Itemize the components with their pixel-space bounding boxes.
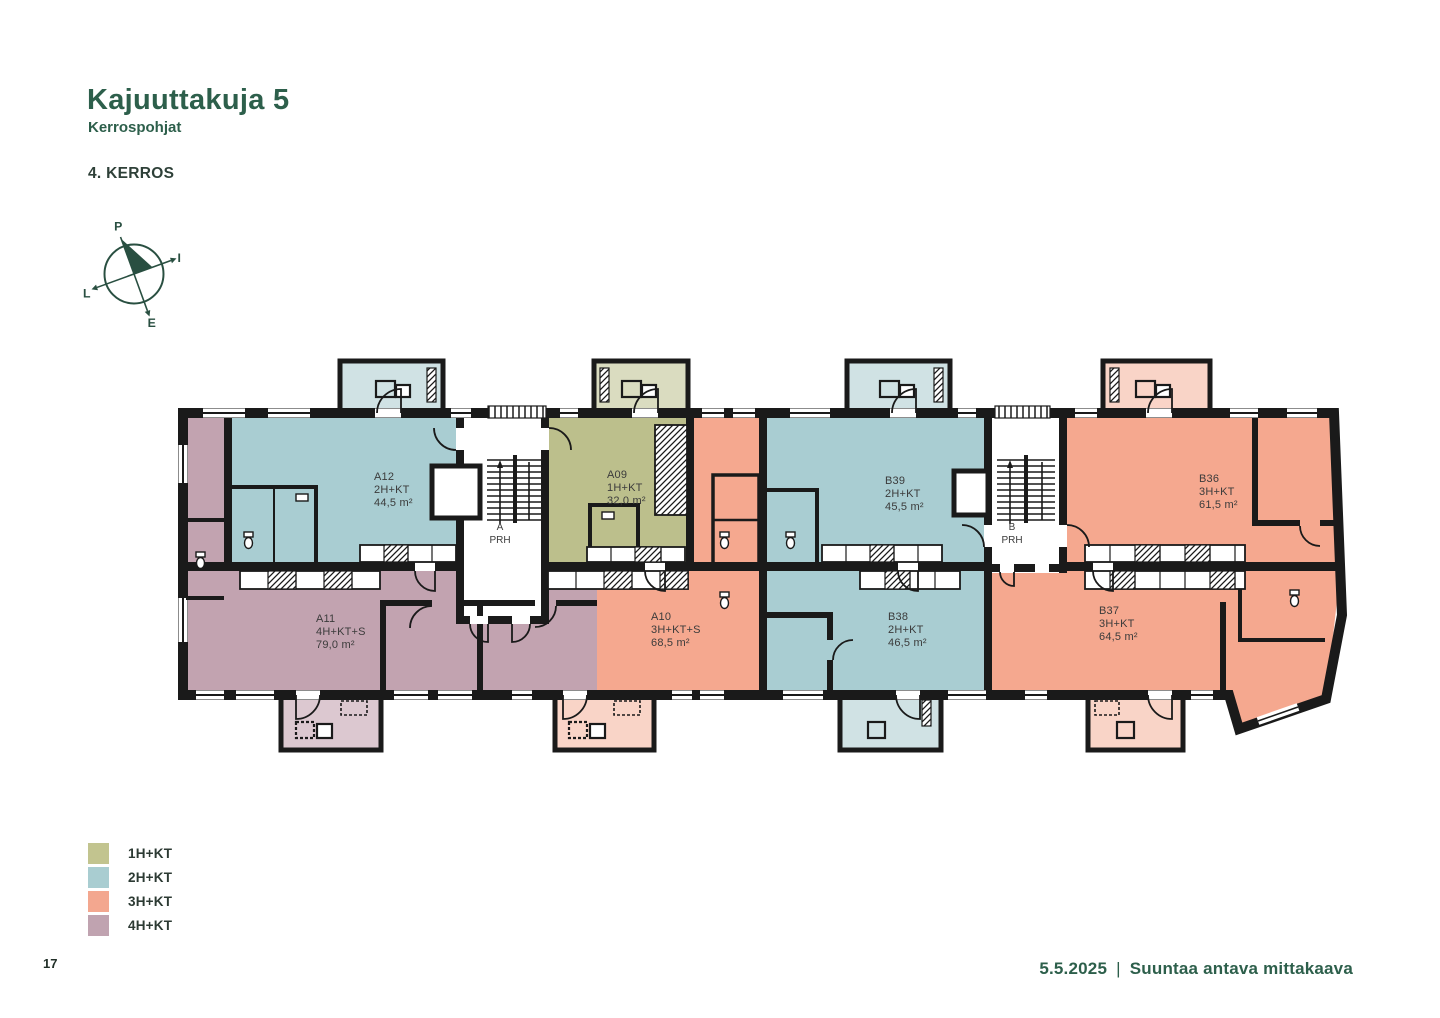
stairs-b [997,455,1055,524]
toilet-icon [786,532,795,549]
legend-label-4hkt: 4H+KT [128,918,172,933]
swatch-rect [88,915,109,936]
legend-swatch-1hkt [88,843,109,864]
elevator-b [954,471,988,515]
french-balcony-b [995,406,1050,418]
footer: 5.5.2025|Suuntaa antava mittakaava [1039,959,1353,979]
floor-plan-svg: A122H+KT44,5 m² A091H+KT32,0 m² B392H+KT… [150,340,1380,770]
compass-axes [97,237,171,311]
wardrobe-hatch-a09 [655,425,687,515]
footer-note: Suuntaa antava mittakaava [1130,959,1353,978]
sink-icon [602,512,614,519]
french-balcony-a [488,406,546,418]
balcony-a10 [555,693,654,750]
balcony-b38 [840,693,941,750]
toilet-icon [244,532,253,549]
legend-item-4hkt: 4H+KT [88,915,172,936]
page: Kajuuttakuja 5 Kerrospohjat 4. KERROS P … [0,0,1440,1018]
legend-label-1hkt: 1H+KT [128,846,172,861]
compass-north-label: P [114,220,122,234]
floor-heading: 4. KERROS [88,165,174,183]
sink-icon [296,494,308,501]
swatch-rect [88,843,109,864]
unit-region-a12 [228,413,460,566]
toilet-icon [1290,590,1299,607]
legend: 1H+KT 2H+KT 3H+KT 4H+KT [88,843,172,939]
balcony-b37 [1088,693,1183,750]
compass-east-label: I [178,251,181,265]
page-title: Kajuuttakuja 5 [87,84,289,117]
legend-swatch-3hkt [88,891,109,912]
toilet-icon [720,532,729,549]
legend-swatch-4hkt [88,915,109,936]
swatch-rect [88,867,109,888]
legend-swatch-2hkt [88,867,109,888]
legend-item-2hkt: 2H+KT [88,867,172,888]
compass-west-label: L [83,287,91,301]
elevator-a [432,466,480,518]
page-subtitle: Kerrospohjat [88,119,181,136]
toilet-icon [720,592,729,609]
compass-south-label: E [148,316,156,330]
stairs-a [487,455,543,524]
compass-rose-icon: P I E L [75,213,193,331]
swatch-rect [88,891,109,912]
footer-date: 5.5.2025 [1039,959,1107,978]
footer-separator: | [1116,959,1121,978]
page-number: 17 [43,956,57,971]
toilet-icon [196,552,205,569]
legend-item-1hkt: 1H+KT [88,843,172,864]
legend-item-3hkt: 3H+KT [88,891,172,912]
legend-label-2hkt: 2H+KT [128,870,172,885]
legend-label-3hkt: 3H+KT [128,894,172,909]
